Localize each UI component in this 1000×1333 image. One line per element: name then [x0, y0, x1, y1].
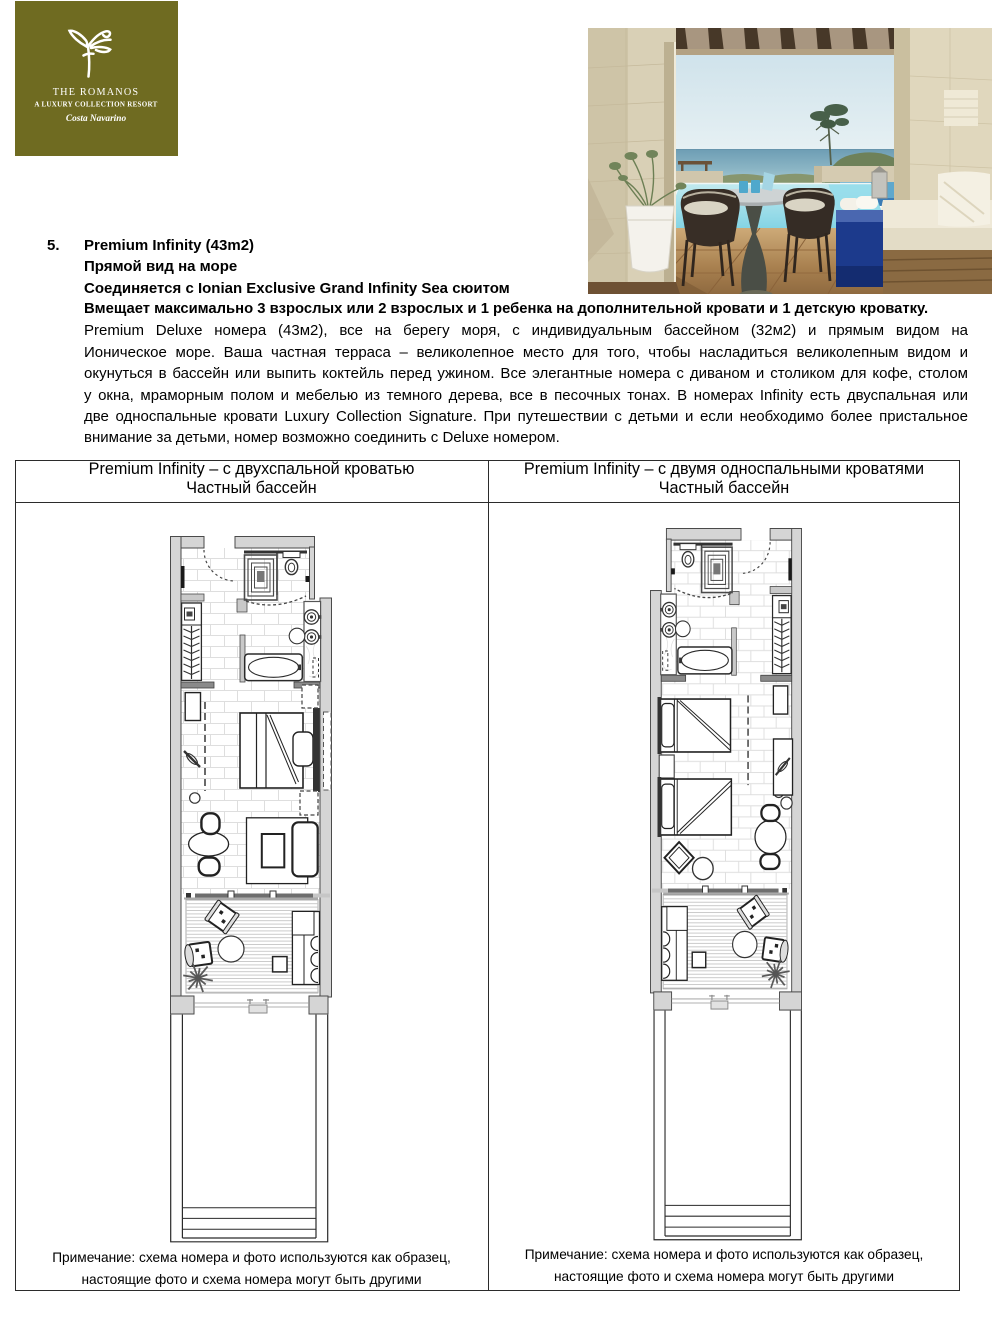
svg-text:Costa Navarino: Costa Navarino — [66, 114, 127, 124]
svg-text:A LUXURY COLLECTION RESORT: A LUXURY COLLECTION RESORT — [34, 101, 157, 109]
svg-text:THE ROMANOS: THE ROMANOS — [53, 87, 140, 98]
